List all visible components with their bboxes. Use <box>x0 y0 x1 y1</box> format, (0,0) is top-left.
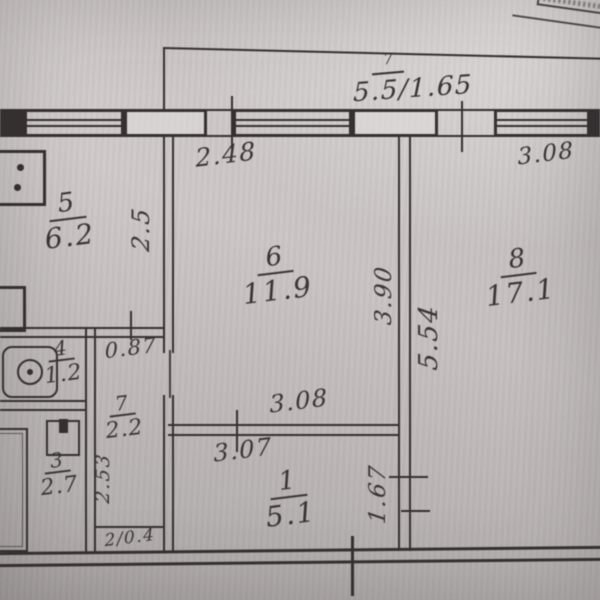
room-6-area: 11.9 <box>241 272 314 310</box>
stamp-box <box>537 0 600 21</box>
wall-pier <box>0 109 24 137</box>
window-kitchen <box>24 109 124 137</box>
room-3-number: 3 <box>42 449 71 475</box>
dim-windows-left: 2.48 <box>195 136 258 173</box>
room-1-label: 1 5.1 <box>260 465 318 532</box>
room-7-area: 2.2 <box>104 416 145 444</box>
room-7-number: 7 <box>107 392 136 418</box>
room-5-label: 5 6.2 <box>39 187 97 254</box>
dim-bath-depth: 2.53 <box>92 451 114 504</box>
dim-corridor-width: 0.87 <box>104 333 158 363</box>
wall-bath-corridor <box>85 327 96 552</box>
wall-wc-bath <box>0 400 85 411</box>
dimension-tick <box>461 101 463 152</box>
wall-room5-room6 <box>163 137 174 353</box>
stamp-text <box>543 0 600 15</box>
door-jamb-tick <box>389 476 428 478</box>
door-threshold-room6 <box>169 350 171 398</box>
window-room6 <box>233 109 352 137</box>
window-room8 <box>494 109 590 137</box>
stamp-underline <box>512 14 600 29</box>
room-6-label: 6 11.9 <box>237 240 314 310</box>
room-7-label: 7 2.2 <box>101 391 145 443</box>
floor-plan-photo: 7 5.5/1.65 <box>0 0 600 600</box>
room-5-number: 5 <box>46 188 86 223</box>
room-8-label: 8 17.1 <box>480 242 557 312</box>
bathtub-icon <box>0 428 28 552</box>
room-8-area: 17.1 <box>484 274 557 312</box>
dim-room1-depth: 1.67 <box>365 463 391 526</box>
dim-room8-depth: 5.54 <box>414 302 444 372</box>
wall-room6-room1 <box>168 424 398 436</box>
wall-segment <box>207 109 233 137</box>
wall-room6-room8 <box>398 137 411 551</box>
balcony-dimension: 5.5/1.65 <box>353 70 473 108</box>
balcony-outline-top <box>163 47 600 60</box>
dim-windows-right: 3.08 <box>517 137 575 170</box>
room-3-label: 3 2.7 <box>36 448 80 500</box>
room-6-number: 6 <box>254 242 294 277</box>
balcony-door-pier <box>352 109 438 137</box>
balcony-outline-side <box>163 47 165 111</box>
door-jamb-tick <box>401 510 430 512</box>
room-1-number: 1 <box>267 466 307 501</box>
dim-room1-width-bottom: 3.07 <box>213 432 273 467</box>
top-exterior-wall <box>0 109 600 137</box>
room-4-area: 1.2 <box>43 361 84 389</box>
room-1-area: 5.1 <box>264 497 318 532</box>
balcony-mark: 7 <box>383 49 395 68</box>
closet-label: 2/0.4 <box>104 525 156 551</box>
dim-room6-depth: 3.90 <box>371 264 397 327</box>
dim-room5-depth: 2.5 <box>127 205 155 253</box>
room-3-area: 2.7 <box>39 473 80 501</box>
room-5-area: 6.2 <box>43 219 97 254</box>
dim-room1-width-top: 3.08 <box>269 383 329 418</box>
wall-pier <box>590 109 600 137</box>
wall-corridor-room1 <box>163 395 174 552</box>
room-4-label: 4 1.2 <box>40 336 84 388</box>
wall-pier <box>124 109 207 137</box>
room-8-number: 8 <box>497 244 537 279</box>
floor-plan: 7 5.5/1.65 <box>0 0 600 600</box>
dimension-tick <box>351 536 354 596</box>
room-4-number: 4 <box>46 337 75 363</box>
wall-segment <box>438 109 494 137</box>
kitchen-sink-icon <box>0 286 26 332</box>
